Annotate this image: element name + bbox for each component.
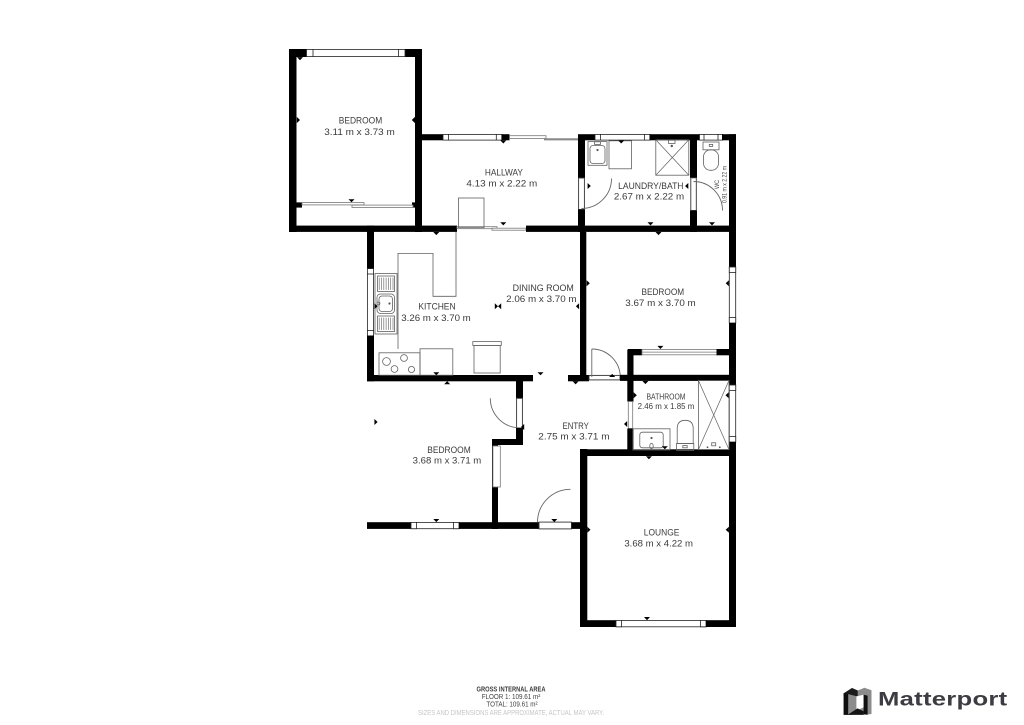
svg-text:TOTAL: 109.61 m²: TOTAL: 109.61 m² — [486, 699, 538, 708]
svg-text:3.68 m x 4.22 m: 3.68 m x 4.22 m — [624, 539, 693, 549]
svg-text:ENTRY: ENTRY — [563, 421, 589, 431]
svg-text:KITCHEN: KITCHEN — [418, 301, 455, 311]
svg-text:4.13 m x 2.22 m: 4.13 m x 2.22 m — [466, 179, 537, 189]
svg-text:2.06 m x 3.70 m: 2.06 m x 3.70 m — [506, 294, 577, 304]
svg-text:LAUNDRY/BATH: LAUNDRY/BATH — [618, 181, 683, 191]
svg-text:BATHROOM: BATHROOM — [647, 393, 686, 402]
svg-text:HALLWAY: HALLWAY — [485, 168, 523, 178]
svg-text:3.67 m x 3.70 m: 3.67 m x 3.70 m — [625, 298, 696, 308]
svg-text:SIZES AND DIMENSIONS ARE APPRO: SIZES AND DIMENSIONS ARE APPROXIMATE, AC… — [418, 710, 604, 717]
svg-text:2.75 m x 3.71 m: 2.75 m x 3.71 m — [538, 431, 609, 441]
svg-text:0.91 m x 2.22 m: 0.91 m x 2.22 m — [721, 166, 728, 203]
svg-text:BEDROOM: BEDROOM — [427, 445, 471, 455]
svg-text:Matterport: Matterport — [878, 689, 1008, 710]
svg-text:BEDROOM: BEDROOM — [339, 116, 383, 126]
svg-text:BEDROOM: BEDROOM — [641, 287, 684, 297]
svg-text:LOUNGE: LOUNGE — [644, 527, 680, 537]
svg-text:3.68 m x 3.71 m: 3.68 m x 3.71 m — [413, 455, 482, 465]
svg-text:3.26 m x 3.70 m: 3.26 m x 3.70 m — [401, 313, 471, 323]
svg-text:3.11 m x 3.73 m: 3.11 m x 3.73 m — [324, 127, 395, 137]
svg-text:WC: WC — [714, 179, 721, 189]
svg-text:DINING ROOM: DINING ROOM — [513, 283, 574, 293]
svg-text:2.67 m x 2.22 m: 2.67 m x 2.22 m — [614, 192, 685, 202]
svg-text:2.46 m x 1.85 m: 2.46 m x 1.85 m — [638, 402, 695, 411]
